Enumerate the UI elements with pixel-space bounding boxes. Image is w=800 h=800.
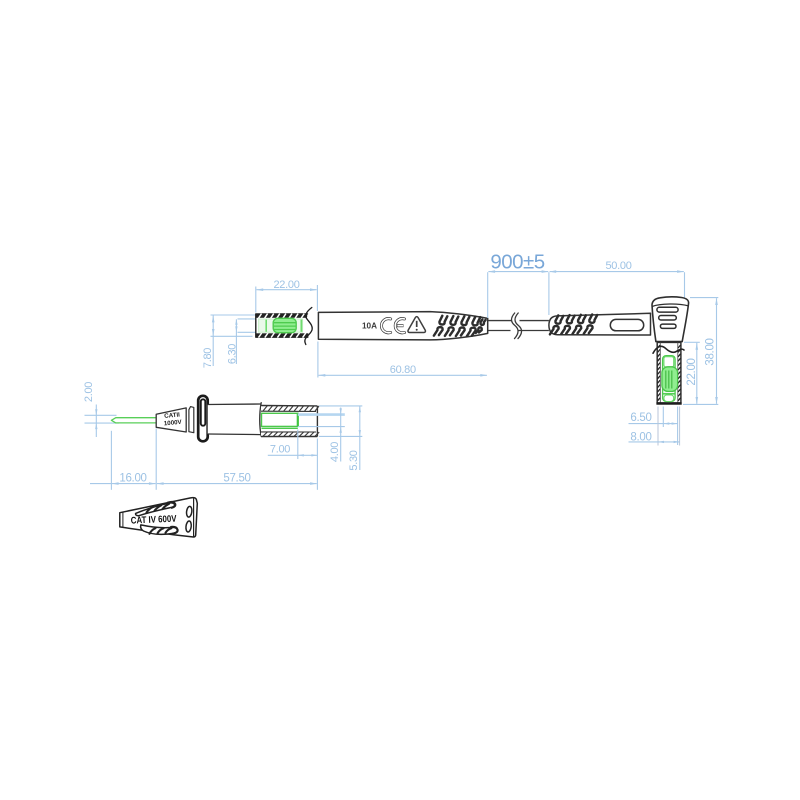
svg-text:60.80: 60.80: [390, 364, 416, 376]
svg-text:7.80: 7.80: [202, 348, 214, 368]
svg-text:22.00: 22.00: [273, 279, 299, 291]
svg-text:22.00: 22.00: [686, 358, 698, 385]
svg-text:CAT IV 600V: CAT IV 600V: [131, 514, 178, 527]
svg-text:10A: 10A: [362, 322, 377, 331]
svg-text:16.00: 16.00: [119, 472, 146, 484]
svg-text:5.30: 5.30: [348, 450, 360, 470]
svg-text:7.00: 7.00: [270, 444, 290, 456]
svg-text:8.00: 8.00: [630, 432, 651, 444]
svg-text:38.00: 38.00: [705, 338, 717, 365]
svg-text:2.00: 2.00: [83, 382, 95, 402]
svg-text:4.00: 4.00: [329, 442, 341, 462]
svg-text:900±5: 900±5: [490, 251, 544, 274]
svg-text:6.30: 6.30: [227, 344, 239, 364]
svg-text:6.50: 6.50: [630, 412, 651, 424]
svg-text:57.50: 57.50: [223, 472, 250, 484]
svg-text:50.00: 50.00: [605, 260, 631, 272]
